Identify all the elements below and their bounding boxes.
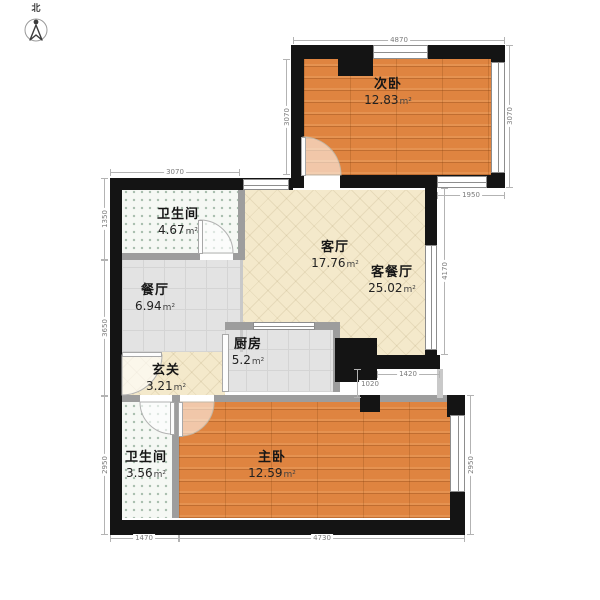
room-name: 卫生间 bbox=[157, 207, 199, 223]
door-arc-bath1 bbox=[200, 220, 233, 253]
door-leaf-entrance bbox=[122, 352, 162, 357]
floor-plan: 次卧 12.83m² 卫生间 4.67m² 客厅 17.76m² 客餐厅 25.… bbox=[0, 0, 600, 600]
door-leaf-bath2 bbox=[170, 402, 175, 435]
dim-bedroom2-left: 3070 bbox=[283, 106, 291, 128]
door-arc-bedroom1 bbox=[180, 402, 214, 436]
room-label-bath2: 卫生间 3.56m² bbox=[125, 450, 167, 480]
dim-bottom-left: 1470 bbox=[133, 534, 155, 542]
room-label-kitchen: 厨房 5.2m² bbox=[232, 337, 264, 367]
room-area: 6.94m² bbox=[135, 298, 175, 313]
room-name: 次卧 bbox=[364, 77, 412, 93]
room-name: 客餐厅 bbox=[368, 265, 416, 281]
dim-step-width: 1420 bbox=[397, 370, 419, 378]
dim-living-right: 4170 bbox=[441, 260, 449, 282]
room-area: 3.21m² bbox=[146, 378, 186, 393]
dim-bedroom2-bottom: 1950 bbox=[460, 191, 482, 199]
room-area: 12.59m² bbox=[248, 465, 296, 480]
dim-left-upper: 1350 bbox=[101, 208, 109, 230]
room-name: 客厅 bbox=[311, 240, 359, 256]
room-area: 12.83m² bbox=[364, 92, 412, 107]
room-label-bedroom1: 主卧 12.59m² bbox=[248, 450, 296, 480]
room-label-bedroom2: 次卧 12.83m² bbox=[364, 77, 412, 107]
room-name: 餐厅 bbox=[135, 283, 175, 299]
dim-bath1-top: 3070 bbox=[164, 168, 186, 176]
room-area: 25.02m² bbox=[368, 280, 416, 295]
room-label-living: 客厅 17.76m² bbox=[311, 240, 359, 270]
room-label-dining: 餐厅 6.94m² bbox=[135, 283, 175, 313]
room-name: 卫生间 bbox=[125, 450, 167, 466]
dim-top: 4870 bbox=[388, 36, 410, 44]
room-area: 17.76m² bbox=[311, 255, 359, 270]
dimline-step-height bbox=[357, 369, 358, 398]
door-arc-bath2 bbox=[140, 402, 172, 434]
door-leaf-bedroom1 bbox=[178, 402, 183, 437]
door-leaf-kitchen bbox=[222, 334, 229, 392]
room-area: 3.56m² bbox=[125, 465, 167, 480]
room-name: 主卧 bbox=[248, 450, 296, 466]
north-label: 北 bbox=[20, 5, 52, 14]
room-name: 厨房 bbox=[232, 337, 264, 353]
dim-left-lower: 2950 bbox=[101, 454, 109, 476]
north-arrow-icon bbox=[20, 14, 52, 44]
dim-left-middle: 3650 bbox=[101, 317, 109, 339]
dim-bedroom2-right: 3070 bbox=[506, 105, 514, 127]
dim-master-right: 2950 bbox=[467, 454, 475, 476]
north-compass: 北 bbox=[20, 5, 52, 48]
room-area: 5.2m² bbox=[232, 352, 264, 367]
room-label-bath1: 卫生间 4.67m² bbox=[157, 207, 199, 237]
room-label-living-dining: 客餐厅 25.02m² bbox=[368, 265, 416, 295]
dim-bottom-right: 4730 bbox=[311, 534, 333, 542]
room-area: 4.67m² bbox=[157, 222, 199, 237]
room-label-foyer: 玄关 3.21m² bbox=[146, 363, 186, 393]
room-name: 玄关 bbox=[146, 363, 186, 379]
door-arc-bedroom2 bbox=[303, 137, 341, 175]
door-leaf-bedroom2 bbox=[301, 137, 306, 176]
door-arc-layer bbox=[0, 0, 600, 600]
dim-step-height: 1020 bbox=[359, 380, 381, 388]
